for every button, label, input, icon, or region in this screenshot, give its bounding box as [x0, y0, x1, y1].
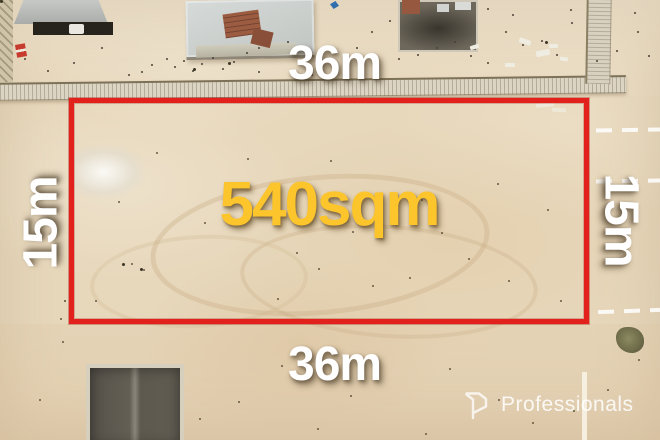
- lot-depth-left-label: 15m: [18, 166, 66, 281]
- lot-depth-right-label: 15m: [597, 163, 645, 278]
- footpath-vertical: [585, 0, 611, 84]
- road-marking-dashes: [596, 127, 660, 132]
- house-roof: [14, 0, 108, 24]
- shrub: [616, 327, 644, 353]
- fence-strip: [0, 0, 13, 82]
- slab-piece: [455, 2, 471, 10]
- lot-width-bottom-label: 36m: [288, 341, 381, 389]
- road-marking-dashes: [598, 308, 660, 314]
- construction-marker: [15, 43, 27, 58]
- debris: [505, 63, 515, 67]
- aerial-lot-photo: 36m 36m 15m 15m 540sqm Professionals: [0, 0, 660, 440]
- brick-pallet: [402, 0, 420, 14]
- driveway-pad: [86, 364, 184, 440]
- lot-area-label: 540sqm: [69, 174, 589, 236]
- brand-name: Professionals: [501, 393, 634, 417]
- brand-watermark: Professionals: [462, 390, 634, 420]
- professionals-logo-icon: [462, 390, 490, 420]
- white-vehicle: [69, 24, 84, 34]
- sand-specks: [0, 0, 3, 3]
- debris: [549, 44, 558, 48]
- slab-piece: [437, 4, 449, 12]
- lot-width-top-label: 36m: [288, 40, 381, 88]
